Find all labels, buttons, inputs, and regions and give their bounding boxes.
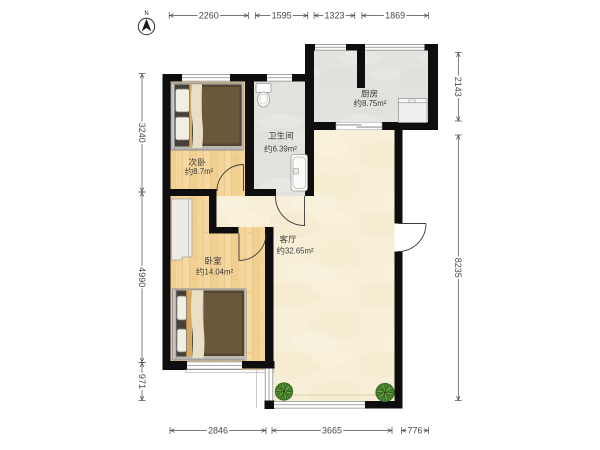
svg-text:2846: 2846 xyxy=(208,426,228,436)
svg-text:6.39m²: 6.39m² xyxy=(273,145,298,154)
svg-text:4990: 4990 xyxy=(137,267,147,287)
svg-text:2260: 2260 xyxy=(199,11,219,21)
svg-text:2143: 2143 xyxy=(453,77,463,97)
svg-text:8.75m²: 8.75m² xyxy=(362,99,387,108)
svg-text:971: 971 xyxy=(137,374,147,389)
svg-text:3665: 3665 xyxy=(322,426,342,436)
svg-text:N: N xyxy=(144,11,148,17)
svg-text:776: 776 xyxy=(407,426,422,436)
svg-text:8235: 8235 xyxy=(453,258,463,278)
svg-text:14.04m²: 14.04m² xyxy=(205,268,234,277)
svg-text:3240: 3240 xyxy=(137,123,147,143)
svg-text:8.7m²: 8.7m² xyxy=(193,167,213,176)
svg-text:1323: 1323 xyxy=(324,11,344,21)
svg-text:32.65m²: 32.65m² xyxy=(285,247,314,256)
svg-text:1595: 1595 xyxy=(272,11,292,21)
svg-text:1869: 1869 xyxy=(385,11,405,21)
